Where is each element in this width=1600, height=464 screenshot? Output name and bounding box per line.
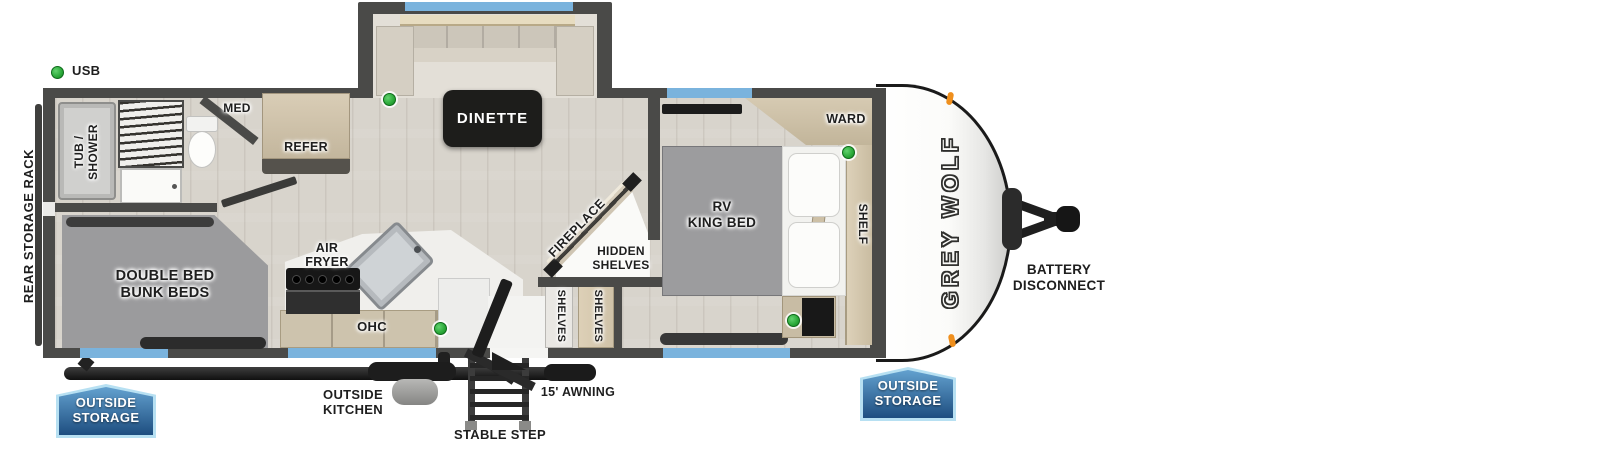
awning-label: 15' AWNING [528, 385, 628, 399]
wardrobe-label: WARD [816, 112, 876, 126]
bunk-lower-rail [140, 337, 266, 349]
dinette-table: DINETTE [443, 90, 542, 147]
step-rung [470, 389, 529, 394]
usb-indicator-dot [787, 314, 800, 327]
tongue-jack [1002, 188, 1022, 250]
shelves-label: SHELVES [551, 281, 567, 351]
burner [332, 275, 341, 284]
outside-kitchen-tank [392, 379, 438, 405]
shelf-label: SHELF [853, 189, 869, 259]
outside-storage-badge: OUTSIDE STORAGE [860, 367, 956, 421]
bathroom-wall [55, 203, 217, 212]
overhead-cabinet-label: OHC [347, 320, 397, 335]
hidden-shelves-label: HIDDEN SHELVES [576, 245, 666, 273]
rear-storage-rack-label: REAR STORAGE RACK [22, 126, 38, 326]
pillow [788, 222, 840, 288]
stable-step-label: STABLE STEP [450, 428, 550, 443]
badge-face: OUTSIDE STORAGE [59, 387, 153, 435]
floorplan-canvas: GREY WOLF BATTERY DISCONNECT DINETTE [0, 0, 1600, 464]
dinette-valance [400, 15, 575, 26]
window-strip [288, 348, 436, 358]
toilet [188, 131, 216, 168]
badge-face: OUTSIDE STORAGE [863, 370, 953, 418]
rear-wall [43, 88, 55, 358]
burner [292, 275, 301, 284]
shelves-label: SHELVES [588, 281, 604, 351]
hitch-coupler [1056, 206, 1080, 232]
dinette-bench [556, 26, 594, 96]
usb-indicator-dot [434, 322, 447, 335]
range-cooktop [286, 268, 360, 290]
awning-roller [544, 364, 596, 381]
brand-logo: GREY WOLF [928, 122, 972, 322]
refrigerator-base [262, 159, 350, 174]
badge-label: OUTSIDE STORAGE [73, 396, 140, 425]
window-strip [80, 348, 168, 358]
battery-disconnect-label: BATTERY DISCONNECT [999, 262, 1119, 293]
faucet [414, 246, 421, 253]
dinette-bench [376, 26, 414, 96]
outside-storage-badge: OUTSIDE STORAGE [56, 384, 156, 438]
window-strip [663, 348, 790, 358]
burner [305, 275, 314, 284]
usb-legend-label: USB [72, 64, 116, 79]
bedroom-wall [648, 98, 660, 240]
air-fryer-range [286, 290, 360, 314]
badge-label: OUTSIDE STORAGE [875, 379, 942, 408]
shelves-wall [614, 284, 622, 348]
front-wall [870, 88, 886, 358]
tub-shower-label: TUB / SHOWER [73, 102, 103, 202]
rear-window [43, 202, 55, 216]
bunk-beds-label: DOUBLE BED BUNK BEDS [95, 268, 235, 301]
tv [662, 104, 742, 114]
usb-indicator-dot [383, 93, 396, 106]
shower-door [118, 100, 184, 168]
outside-kitchen-label: OUTSIDE KITCHEN [313, 388, 393, 418]
king-bed-label: RV KING BED [672, 199, 772, 230]
air-fryer-label: AIR FRYER [292, 241, 362, 270]
bed-foot-bench [660, 333, 788, 345]
step-rung [470, 415, 529, 420]
burner [345, 275, 354, 284]
refrigerator-label: REFER [276, 140, 336, 154]
usb-legend-dot [51, 66, 64, 79]
door-handle [172, 184, 177, 189]
burner [318, 275, 327, 284]
toilet-tank [186, 116, 218, 132]
step-rung [470, 402, 529, 407]
usb-indicator-dot [842, 146, 855, 159]
med-cabinet-label: MED [212, 102, 262, 116]
bedside-cabinet-front [802, 298, 834, 336]
window-strip [667, 88, 752, 98]
window-strip [405, 2, 573, 11]
pillow [788, 153, 840, 217]
bunk-bolster [66, 217, 214, 227]
